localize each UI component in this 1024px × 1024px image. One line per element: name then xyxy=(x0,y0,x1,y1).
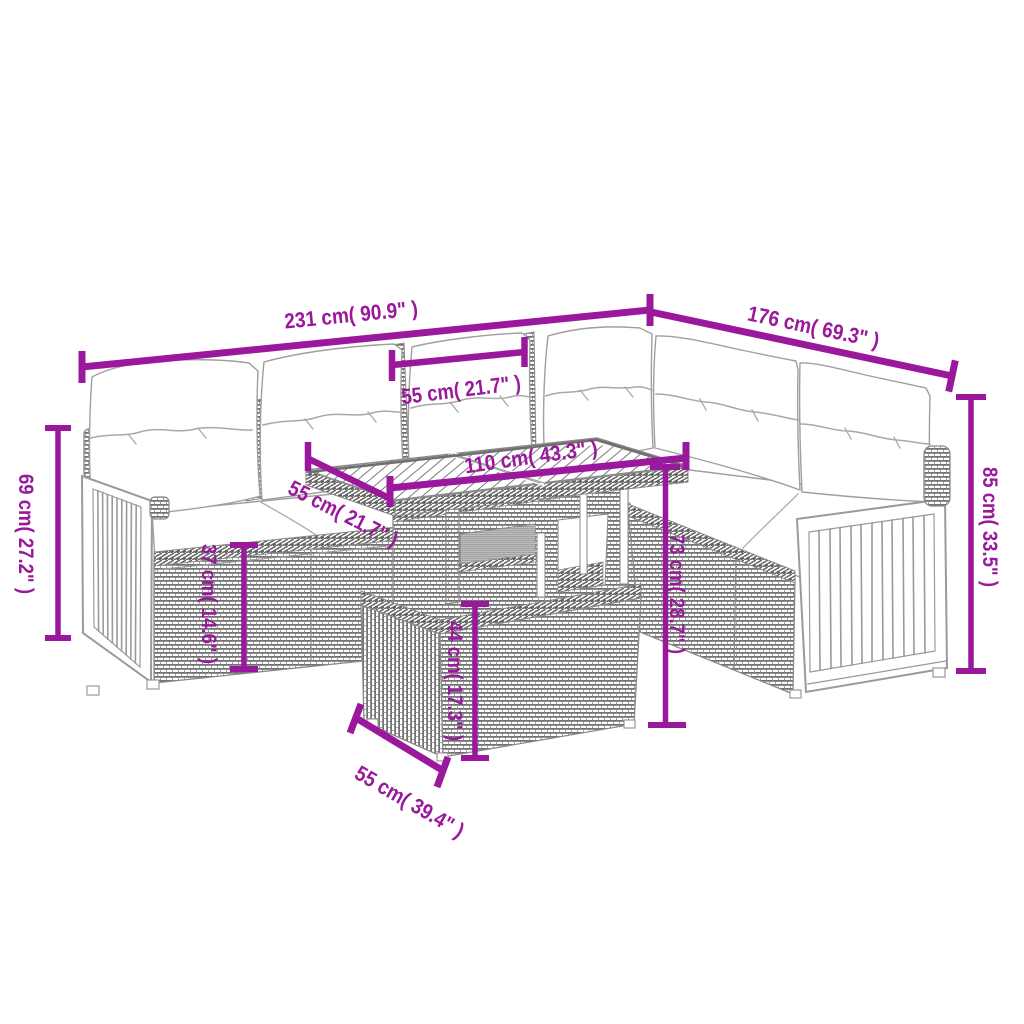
svg-text:69 cm( 27.2" ): 69 cm( 27.2" ) xyxy=(14,474,38,594)
svg-text:85 cm( 33.5" ): 85 cm( 33.5" ) xyxy=(978,467,1002,587)
svg-text:44 cm( 17.3" ): 44 cm( 17.3" ) xyxy=(443,621,467,741)
svg-text:73 cm( 28.7" ): 73 cm( 28.7" ) xyxy=(665,534,689,654)
svg-text:37 cm( 14.6" ): 37 cm( 14.6" ) xyxy=(197,544,221,664)
